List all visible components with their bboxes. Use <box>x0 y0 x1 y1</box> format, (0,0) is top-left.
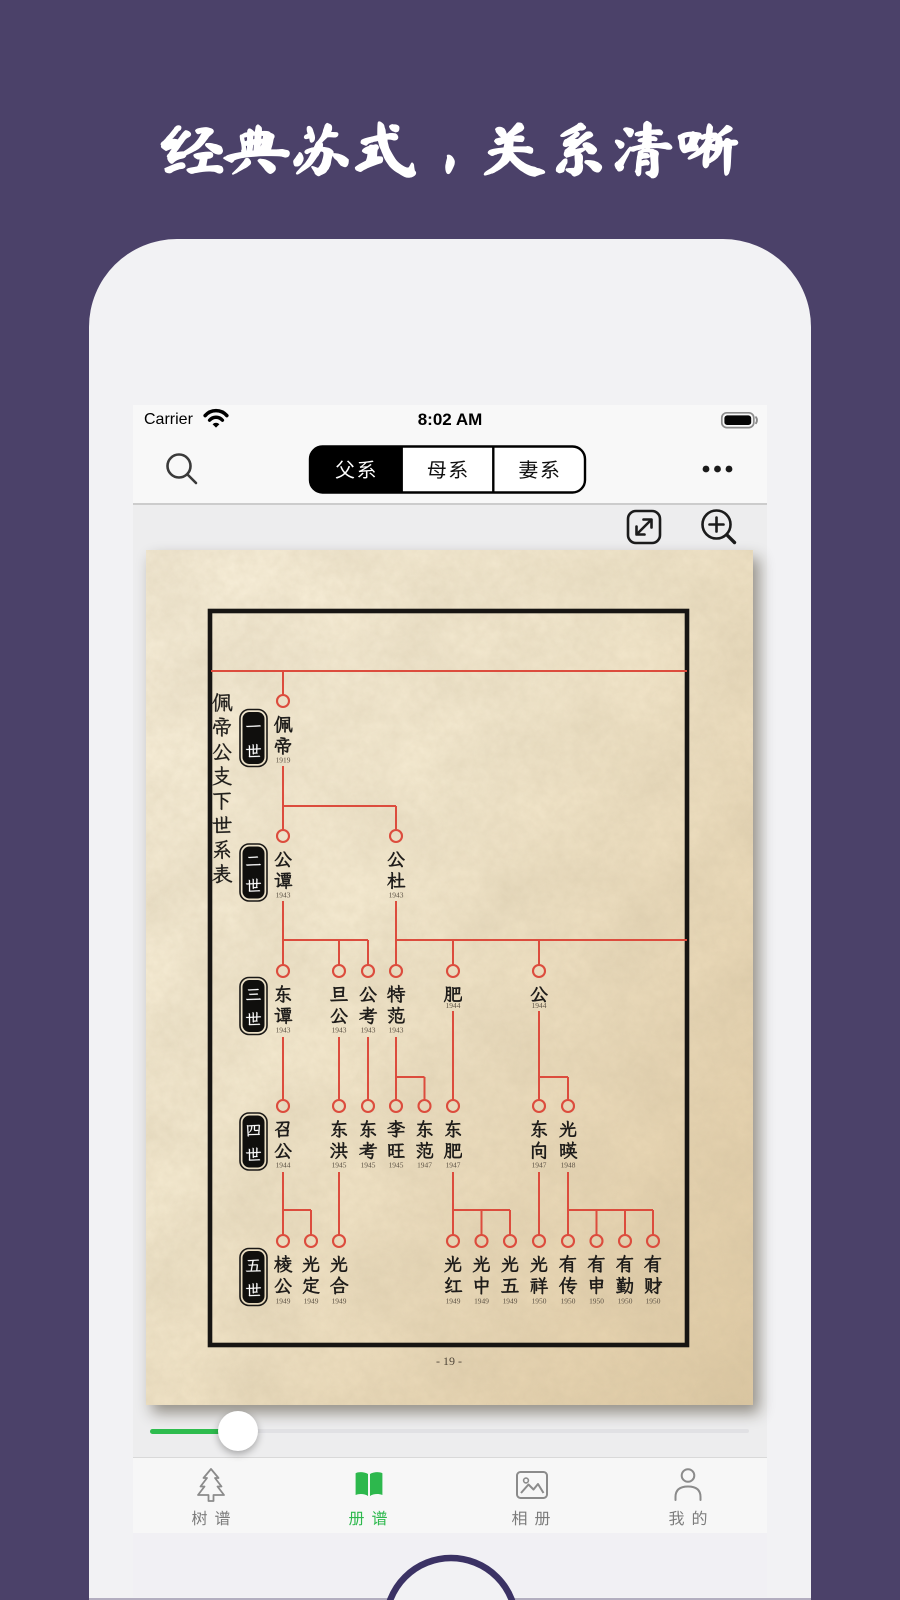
svg-text:1949: 1949 <box>446 1297 461 1306</box>
svg-text:1944: 1944 <box>532 1001 547 1010</box>
svg-text:1950: 1950 <box>561 1297 576 1306</box>
svg-text:1949: 1949 <box>503 1297 518 1306</box>
svg-text:1949: 1949 <box>276 1297 291 1306</box>
svg-text:1950: 1950 <box>589 1297 604 1306</box>
svg-text:1949: 1949 <box>474 1297 489 1306</box>
svg-text:1943: 1943 <box>389 1026 404 1035</box>
svg-text:1950: 1950 <box>532 1297 547 1306</box>
svg-text:1919: 1919 <box>276 756 291 765</box>
svg-text:1943: 1943 <box>389 891 404 900</box>
svg-text:1947: 1947 <box>417 1161 432 1170</box>
svg-text:1948: 1948 <box>561 1161 576 1170</box>
svg-text:1945: 1945 <box>389 1161 404 1170</box>
svg-text:1943: 1943 <box>276 891 291 900</box>
svg-text:1944: 1944 <box>446 1001 461 1010</box>
svg-text:1945: 1945 <box>361 1161 376 1170</box>
svg-text:1947: 1947 <box>532 1161 547 1170</box>
svg-text:1949: 1949 <box>304 1297 319 1306</box>
svg-text:1947: 1947 <box>446 1161 461 1170</box>
svg-text:1943: 1943 <box>332 1026 347 1035</box>
svg-text:1950: 1950 <box>646 1297 661 1306</box>
svg-text:1949: 1949 <box>332 1297 347 1306</box>
svg-text:1943: 1943 <box>361 1026 376 1035</box>
svg-text:- 19 -: - 19 - <box>436 1354 462 1368</box>
svg-text:1950: 1950 <box>618 1297 633 1306</box>
svg-text:1943: 1943 <box>276 1026 291 1035</box>
svg-text:1945: 1945 <box>332 1161 347 1170</box>
svg-text:1944: 1944 <box>276 1161 291 1170</box>
